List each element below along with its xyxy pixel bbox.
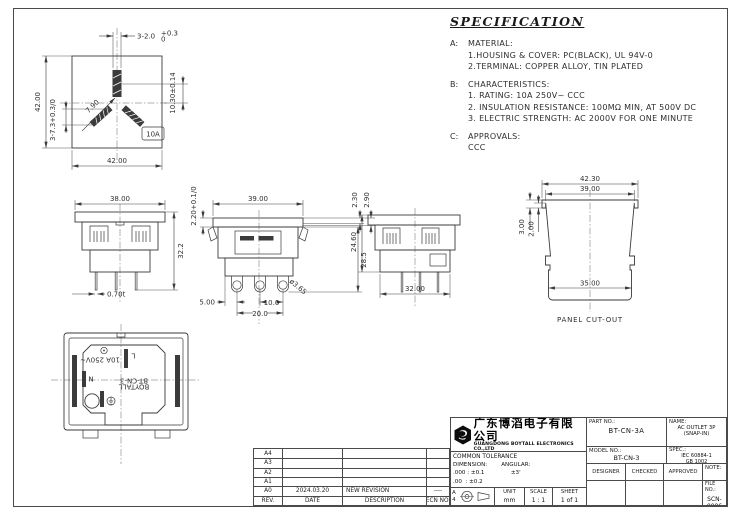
extension-line bbox=[526, 200, 546, 208]
angular-label: ANGULAR: bbox=[501, 461, 530, 469]
rev-cell: A1 bbox=[254, 477, 282, 486]
part-no-cell: PART NO.: BT-CN-3A bbox=[586, 418, 666, 446]
rev-cell: A0 bbox=[254, 486, 282, 495]
rev-cell bbox=[342, 477, 426, 486]
dim-slot-length: 3-7.3+0.3/0 bbox=[49, 99, 57, 141]
dim-body-width: 32.00 bbox=[405, 285, 425, 293]
flange-outline bbox=[213, 218, 303, 227]
projection-symbol-icon bbox=[458, 489, 491, 504]
dim-pin-offset: 5.00 bbox=[199, 299, 215, 307]
extension-line bbox=[122, 84, 188, 103]
socket-recess bbox=[235, 231, 281, 254]
approved-signature-cell bbox=[663, 480, 702, 505]
rev-cell: NEW REVISION bbox=[342, 486, 426, 495]
terminal-pin bbox=[115, 272, 117, 290]
terminal-pin bbox=[95, 272, 97, 290]
rear-rating-text: 10A 250V~ bbox=[80, 356, 120, 364]
dim-body-width: 38.00 bbox=[110, 195, 130, 203]
line-label: L bbox=[131, 352, 135, 360]
dim-face-width: 42.00 bbox=[107, 157, 127, 165]
dim-step-outer: 3.00 bbox=[518, 219, 526, 235]
side-view-38-drawing: 38.00 32.2 0.70t bbox=[50, 178, 200, 320]
dim-earth-offset: 10.30±0.14 bbox=[169, 72, 177, 114]
rev-cell bbox=[342, 458, 426, 467]
unit-value: mm bbox=[495, 495, 524, 504]
spec-section-heading: CHARACTERISTICS: bbox=[468, 79, 696, 91]
file-no-cell: FILE NO.: SCN-0006 bbox=[702, 480, 726, 505]
model-no-value: BT-CN-3 bbox=[587, 454, 666, 462]
snap-wing bbox=[208, 227, 217, 241]
scale-value: 1 : 1 bbox=[525, 495, 552, 504]
rev-header: DESCRIPTION bbox=[342, 496, 426, 505]
terminal-hole bbox=[279, 281, 287, 289]
rear-view-drawing: 10A 250V~ L N BOYTALL BT-CN-3 bbox=[45, 322, 205, 470]
rev-cell bbox=[426, 468, 449, 477]
dim-slot-width-tol-dn: 0 bbox=[161, 36, 165, 44]
neutral-label: N bbox=[88, 375, 93, 383]
sheet-size-cell: A 4 bbox=[451, 487, 494, 505]
dim-face-height: 42.00 bbox=[34, 92, 42, 112]
rev-cell: A2 bbox=[254, 468, 282, 477]
title-block: 广东博滔电子有限公司 GUANGDONG BOYTALL ELECTRONICS… bbox=[450, 417, 727, 506]
rev-cell: ---- bbox=[426, 486, 449, 495]
spec-section-key: C: bbox=[450, 131, 461, 154]
spec-line: 1. RATING: 10A 250V~ CCC bbox=[468, 90, 696, 102]
tolerance-line: .00 : ±0.2 bbox=[453, 478, 487, 486]
designer-label: DESIGNER bbox=[592, 469, 619, 475]
spec-line: 1.HOUSING & COVER: PC(BLACK), UL 94V-0 bbox=[468, 50, 653, 62]
model-no-label: MODEL NO.: bbox=[587, 447, 666, 454]
spec-cell: SPEC.: IEC 60884-1 GB 1002 bbox=[666, 446, 726, 463]
rev-header: ECN NO. bbox=[426, 496, 449, 505]
snap-hook bbox=[132, 226, 150, 242]
dim-terminal-hole-dia: ø3.65 bbox=[288, 277, 308, 296]
line-terminal bbox=[124, 349, 128, 368]
snap-hook bbox=[383, 228, 400, 244]
extension-line bbox=[358, 215, 380, 272]
company-name-cn: 广东博滔电子有限公司 bbox=[474, 418, 584, 442]
spec-line: CCC bbox=[468, 142, 521, 154]
checked-header: CHECKED bbox=[625, 463, 663, 480]
dim-body-height: 24.60 bbox=[350, 232, 358, 252]
spec-line: 2. INSULATION RESISTANCE: 100MΩ MIN, AT … bbox=[468, 102, 696, 114]
front-view-drawing: 3-2.0 +0.3 0 10.30±0.14 42.00 3-7.3+0.3/… bbox=[18, 10, 246, 182]
sheet-cell: SHEET 1 of 1 bbox=[552, 487, 586, 505]
spec-section-heading: MATERIAL: bbox=[468, 38, 653, 50]
unit-cell: UNIT mm bbox=[494, 487, 524, 505]
snap-window bbox=[72, 355, 77, 407]
mounting-hole bbox=[85, 394, 99, 408]
checked-signature-cell bbox=[625, 480, 663, 505]
dim-cutout-inner: 39.00 bbox=[580, 185, 600, 193]
spec-line: 3. ELECTRIC STRENGTH: AC 2000V FOR ONE M… bbox=[468, 113, 696, 125]
name-line2: (SNAP-IN) bbox=[667, 431, 726, 437]
scale-cell: SCALE 1 : 1 bbox=[524, 487, 552, 505]
terminal-pin bbox=[135, 272, 137, 290]
note-cell: NOTE: bbox=[702, 463, 726, 480]
rev-cell bbox=[282, 477, 342, 486]
snap-hook bbox=[422, 228, 439, 244]
rev-cell bbox=[342, 449, 426, 458]
name-cell: NAME: AC OUTLET 3P (SNAP-IN) bbox=[666, 418, 726, 446]
designer-header: DESIGNER bbox=[586, 463, 625, 480]
mount-foot bbox=[83, 430, 98, 438]
checked-label: CHECKED bbox=[632, 469, 658, 475]
sheet-value: 1 of 1 bbox=[553, 495, 586, 504]
snap-wing bbox=[299, 227, 308, 241]
dimension-label: DIMENSION: bbox=[453, 461, 487, 469]
approved-label: APPROVED bbox=[669, 469, 698, 475]
model-no-cell: MODEL NO.: BT-CN-3 bbox=[586, 446, 666, 463]
spec-title: SPECIFICATION bbox=[450, 14, 724, 29]
part-no-label: PART NO.: bbox=[587, 418, 666, 425]
sheet-size-num: 4 bbox=[452, 497, 456, 503]
rev-cell: A3 bbox=[254, 458, 282, 467]
designer-signature-cell bbox=[586, 480, 625, 505]
extension-line bbox=[137, 212, 178, 290]
side-view-32-drawing: 24.60 32.00 bbox=[350, 180, 494, 322]
note-label: NOTE: bbox=[703, 464, 726, 471]
revision-table: A4 A3 A2 A1 A0 2024.03.20 NEW REVISION -… bbox=[253, 448, 450, 506]
angular-tolerance: ±3' bbox=[501, 469, 530, 477]
unit-label: UNIT bbox=[495, 488, 524, 495]
engineering-drawing-sheet: SPECIFICATION A: MATERIAL: 1.HOUSING & C… bbox=[0, 0, 738, 512]
terminal-hole bbox=[233, 281, 241, 289]
rev-cell: A4 bbox=[254, 449, 282, 458]
company-cell: 广东博滔电子有限公司 GUANGDONG BOYTALL ELECTRONICS… bbox=[451, 418, 586, 451]
extension-line bbox=[200, 218, 213, 227]
terminal-pin bbox=[437, 272, 439, 292]
earth-terminal bbox=[100, 391, 104, 407]
neutral-slot bbox=[122, 105, 145, 127]
rev-header: DATE bbox=[282, 496, 342, 505]
part-no-value: BT-CN-3A bbox=[587, 425, 666, 435]
rev-cell bbox=[426, 449, 449, 458]
spec-line: 2.TERMINAL: COPPER ALLOY, TIN PLATED bbox=[468, 61, 653, 73]
spec-section-approvals: C: APPROVALS: CCC bbox=[450, 131, 724, 154]
snap-window bbox=[175, 355, 180, 407]
panel-cutout-caption: PANEL CUT-OUT bbox=[557, 316, 623, 324]
sheet-label: SHEET bbox=[553, 488, 586, 495]
file-no-value: SCN-0006 bbox=[703, 494, 726, 506]
model-text: BT-CN-3 bbox=[120, 377, 148, 385]
rev-cell bbox=[282, 449, 342, 458]
tolerance-cell: COMMON TOLERANCE DIMENSION: .000 : ±0.1 … bbox=[451, 451, 586, 487]
spec-section-key: A: bbox=[450, 38, 461, 73]
rev-header: REV. bbox=[254, 496, 282, 505]
ccc-mark-icon bbox=[103, 350, 105, 352]
earth-slot bbox=[113, 70, 122, 97]
dim-body-width: 39.00 bbox=[248, 195, 268, 203]
dim-flange-thickness: 2.20+0.1/0 bbox=[190, 186, 198, 225]
spec-section-material: A: MATERIAL: 1.HOUSING & COVER: PC(BLACK… bbox=[450, 38, 724, 73]
dim-slot-angle: 7.90 bbox=[84, 98, 101, 115]
dim-slot-width: 3-2.0 bbox=[137, 33, 155, 41]
upper-body-outline bbox=[218, 227, 298, 258]
ground-symbol-icon bbox=[107, 397, 115, 405]
dim-cutout-bottom: 35.00 bbox=[580, 280, 600, 288]
tolerance-line: .000 : ±0.1 bbox=[453, 469, 487, 477]
spec-section-heading: APPROVALS: bbox=[468, 131, 521, 143]
rating-badge: 10A bbox=[146, 131, 160, 139]
dim-terminal-thickness: 0.70t bbox=[107, 291, 126, 299]
name-label: NAME: bbox=[667, 418, 726, 425]
panel-cutout-drawing: 42.30 39.00 3.00 2.00 35.00 PANEL CUT-OU… bbox=[500, 170, 680, 328]
neutral-terminal bbox=[82, 371, 86, 387]
vent-slot bbox=[240, 236, 254, 241]
snap-hook bbox=[90, 226, 108, 242]
rev-cell: 2024.03.20 bbox=[282, 486, 342, 495]
spec-section-key: B: bbox=[450, 79, 461, 125]
specification-block: SPECIFICATION A: MATERIAL: 1.HOUSING & C… bbox=[450, 14, 724, 160]
side-window bbox=[430, 254, 446, 266]
dim-cutout-outer: 42.30 bbox=[580, 175, 600, 183]
rev-cell bbox=[426, 477, 449, 486]
extension-line bbox=[42, 56, 72, 148]
dim-step-inner: 2.00 bbox=[528, 221, 536, 237]
dim-pin-pitch: 10.0 bbox=[264, 299, 280, 307]
scale-label: SCALE bbox=[525, 488, 552, 495]
dim-body-height: 32.2 bbox=[177, 243, 185, 259]
rev-cell bbox=[282, 468, 342, 477]
company-logo-icon bbox=[453, 425, 471, 445]
rev-cell bbox=[342, 468, 426, 477]
rev-cell bbox=[426, 458, 449, 467]
file-no-label: FILE NO.: bbox=[703, 481, 726, 494]
vent-slot bbox=[259, 236, 274, 241]
rev-cell bbox=[282, 458, 342, 467]
sheet-size-letter: A bbox=[452, 490, 456, 496]
company-name-en: GUANGDONG BOYTALL ELECTRONICS CO.,LTD bbox=[474, 442, 584, 451]
terminal-pin bbox=[401, 272, 403, 292]
tolerance-title: COMMON TOLERANCE bbox=[451, 452, 586, 461]
spec-section-characteristics: B: CHARACTERISTICS: 1. RATING: 10A 250V~… bbox=[450, 79, 724, 125]
dim-pin-span: 20.0 bbox=[252, 310, 268, 318]
mount-foot bbox=[155, 430, 170, 438]
terminal-hole bbox=[256, 281, 264, 289]
flange-outline bbox=[368, 215, 460, 225]
approved-header: APPROVED bbox=[663, 463, 702, 480]
